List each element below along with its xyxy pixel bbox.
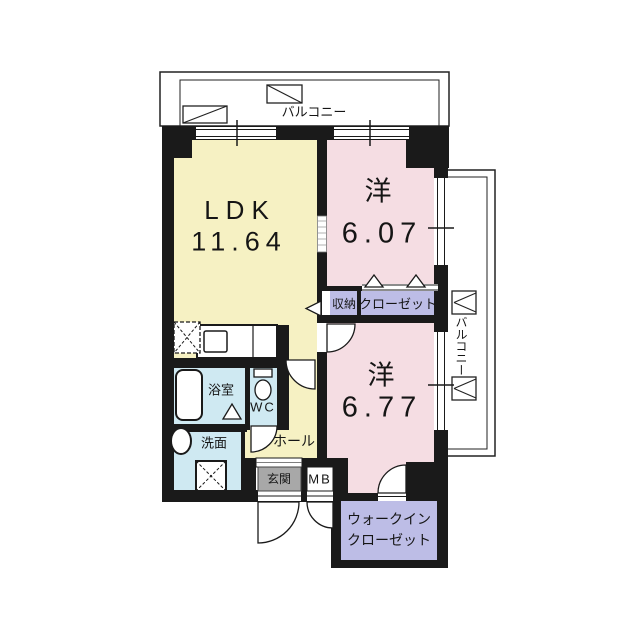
door-arc-meter-box [307, 502, 333, 528]
walk-in-closet-label: ウォークイン クローゼット [347, 509, 431, 551]
door-arc-entrance [258, 502, 299, 543]
wc-label: WC [250, 401, 276, 414]
western2-size-label: 6.77 [342, 394, 422, 423]
closet-label: クローゼット [359, 298, 437, 311]
wash-basin [171, 428, 191, 454]
floorplan-canvas: LDK 11.64 洋 6.07 洋 6.77 バルコニー バルコニー 収納 ク… [0, 0, 640, 640]
washroom-label: 洗面 [201, 437, 227, 450]
entrance-label: 玄関 [267, 473, 291, 485]
western1-room-label: 洋 [365, 179, 392, 206]
balcony-right [446, 170, 495, 456]
window-band [334, 127, 409, 139]
window-band [196, 127, 276, 139]
window-band [435, 178, 447, 265]
walk-in-closet-label-line2: クローゼット [347, 530, 431, 551]
bath-label: 浴室 [208, 384, 234, 397]
meter-box-label: MB [308, 473, 332, 486]
ldk-size-label: 11.64 [191, 229, 287, 256]
floorplan-svg [0, 0, 640, 640]
ldk-room-label: LDK [204, 197, 276, 223]
balcony-top-label: バルコニー [282, 106, 347, 119]
threshold-lines [258, 496, 406, 497]
hall-label: ホール [273, 434, 315, 448]
window-band [435, 332, 447, 430]
kitchen-sink [204, 331, 227, 352]
bathtub [176, 370, 202, 420]
storage-label: 収納 [332, 298, 356, 310]
toilet-tank [254, 369, 272, 377]
walk-in-closet-label-line1: ウォークイン [347, 509, 431, 530]
toilet-bowl [255, 380, 271, 400]
balcony-right-label: バルコニー [455, 316, 467, 376]
western1-size-label: 6.07 [342, 220, 422, 249]
western2-room-label: 洋 [368, 363, 395, 390]
